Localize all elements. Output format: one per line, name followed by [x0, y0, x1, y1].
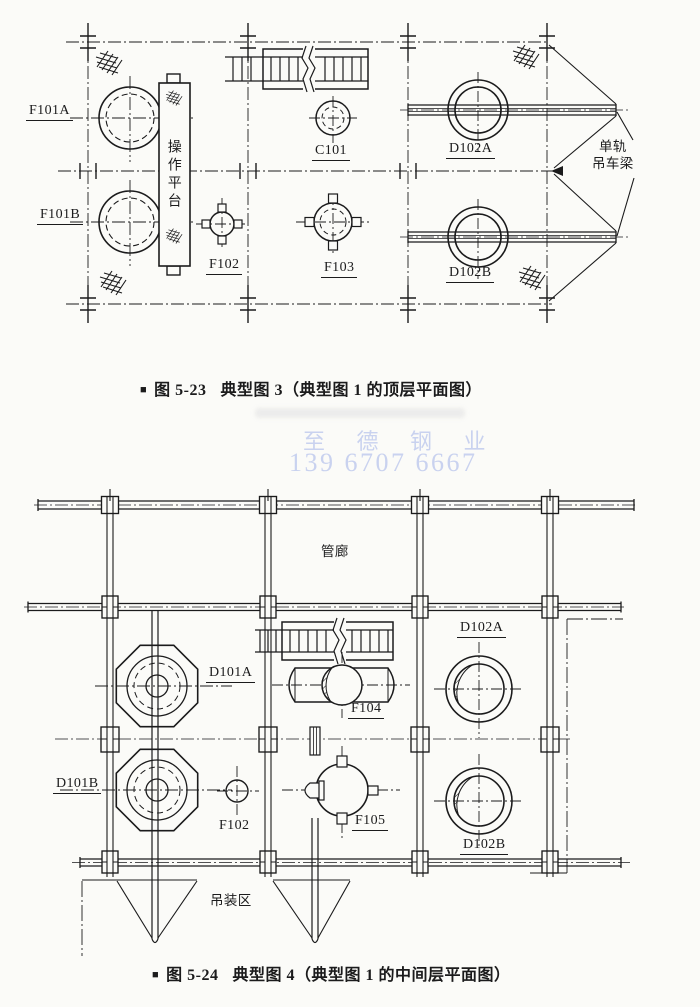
- label-f103: F103: [321, 261, 357, 278]
- vessel-f103: [296, 194, 370, 253]
- caption-title: 典型图 4（典型图 1 的中间层平面图）: [233, 967, 511, 984]
- watermark-phone: 139 6707 6667: [289, 448, 478, 478]
- caption-title: 典型图 3（典型图 1 的顶层平面图）: [221, 382, 483, 399]
- pipe-left: [152, 611, 158, 943]
- label-f102-top: F102: [206, 258, 242, 275]
- caption-number: 图 5-23: [154, 382, 206, 399]
- label-f105: F105: [352, 814, 388, 831]
- label-f101a: F101A: [26, 104, 73, 121]
- vessel-d102a-top: [400, 72, 629, 152]
- label-f101b: F101B: [37, 208, 83, 225]
- label-monorail-line1: 单轨: [599, 140, 627, 154]
- label-f104: F104: [348, 702, 384, 719]
- v-braces: [82, 880, 350, 938]
- vessel-f102-bottom: [217, 766, 259, 818]
- plan-drawings: [0, 0, 700, 1007]
- vessel-d101a: [95, 645, 232, 726]
- stairs-bottom: [255, 618, 393, 664]
- label-d102a-bottom: D102A: [457, 621, 506, 638]
- vessel-c101: [309, 96, 357, 143]
- caption-number: 图 5-24: [166, 967, 218, 984]
- label-f102-bottom: F102: [219, 819, 249, 834]
- label-c101: C101: [312, 144, 350, 161]
- stairs-top: [225, 46, 368, 92]
- label-d102a-top: D102A: [446, 142, 495, 159]
- label-d102b-bottom: D102B: [460, 838, 508, 855]
- caption-square-icon: ■: [152, 969, 159, 981]
- vessel-f102-top: [196, 198, 248, 250]
- label-operating-platform: 操作平台: [165, 139, 180, 211]
- label-monorail-line2: 吊车梁: [592, 157, 634, 171]
- vessel-d102b-bottom: [434, 754, 524, 848]
- label-d102b-top: D102B: [446, 266, 494, 283]
- pipe-right: [310, 727, 320, 943]
- caption-fig-5-23: ■图 5-23典型图 3（典型图 1 的顶层平面图）: [140, 376, 482, 400]
- vessel-d102a-bottom: [434, 642, 524, 738]
- caption-fig-5-24: ■图 5-24典型图 4（典型图 1 的中间层平面图）: [152, 961, 511, 985]
- print-bleed-smudge: [255, 408, 465, 418]
- label-d101b: D101B: [53, 777, 101, 794]
- label-lifting-area: 吊装区: [210, 894, 252, 908]
- scanned-page: F101A F101B 操作平台 C101 F102 F103 D102A D1…: [0, 0, 700, 1007]
- caption-square-icon: ■: [140, 384, 147, 396]
- monorail-beam-lines: [549, 45, 634, 301]
- label-pipe-gallery: 管廊: [321, 545, 349, 559]
- label-d101a: D101A: [206, 666, 255, 683]
